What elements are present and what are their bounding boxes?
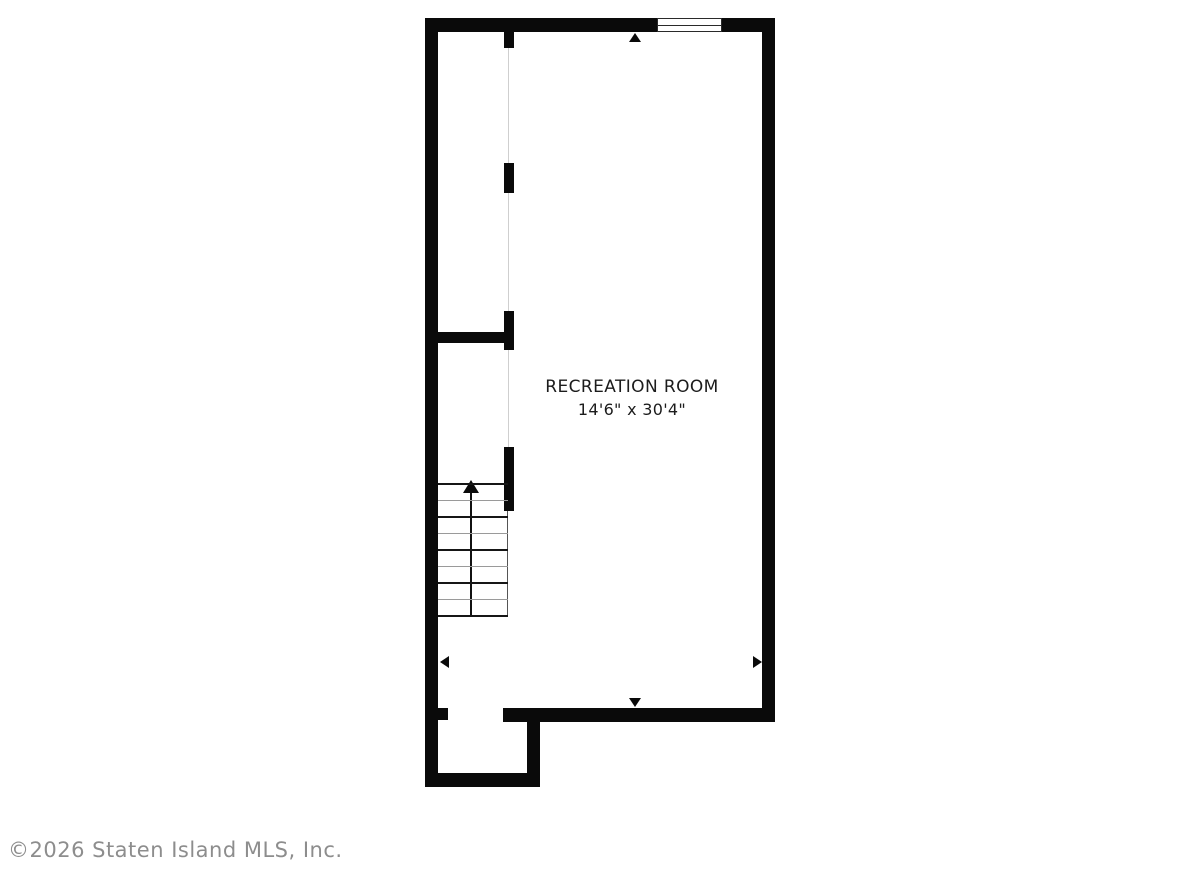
dimension-arrow-right-icon — [753, 656, 762, 668]
staircase — [438, 483, 508, 617]
stair-tread — [438, 599, 508, 600]
wall-left — [425, 18, 438, 787]
stair-tread — [438, 516, 508, 518]
stair-tread — [438, 500, 508, 501]
stair-tread — [438, 566, 508, 567]
wall-protrusion-bottom — [425, 773, 540, 787]
copyright-text: ©2026 Staten Island MLS, Inc. — [8, 838, 343, 862]
room-name: RECREATION ROOM — [498, 376, 766, 398]
wall-interior-segment-3 — [504, 311, 514, 350]
stair-tread — [438, 533, 508, 534]
stair-tread — [438, 483, 508, 485]
room-dimensions: 14'6" x 30'4" — [498, 398, 766, 422]
dimension-arrow-left-icon — [440, 656, 449, 668]
wall-interior-segment-1 — [504, 32, 514, 48]
floorplan-canvas: RECREATION ROOM 14'6" x 30'4" ©2026 Stat… — [0, 0, 1203, 893]
stair-tread — [438, 615, 508, 617]
dimension-arrow-down-icon — [629, 698, 641, 707]
window-icon — [657, 18, 722, 32]
staircase-edge-line — [507, 511, 508, 617]
stair-tread — [438, 549, 508, 551]
room-label-block: RECREATION ROOM 14'6" x 30'4" — [498, 376, 766, 422]
wall-interior-horizontal — [438, 332, 514, 343]
stair-tread — [438, 582, 508, 584]
dimension-arrow-up-icon — [629, 33, 641, 42]
wall-bottom-main — [503, 708, 775, 722]
wall-top — [425, 18, 775, 32]
window-pane-line — [658, 25, 721, 26]
wall-bottom-door-stub — [438, 708, 448, 720]
wall-right — [762, 18, 775, 722]
stairs-up-arrow-icon — [463, 480, 479, 493]
wall-interior-segment-2 — [504, 163, 514, 193]
